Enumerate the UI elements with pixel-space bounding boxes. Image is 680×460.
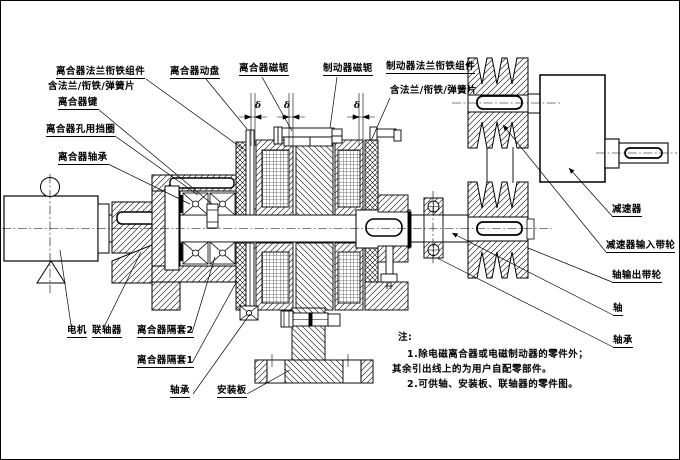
label-mounting-plate: 安装板 bbox=[217, 386, 247, 398]
label-shaft: 轴 bbox=[613, 304, 623, 316]
gap-delta-symbol: δ bbox=[284, 101, 290, 111]
clutch-shaft-key bbox=[207, 204, 218, 228]
gap-delta-symbol: δ bbox=[354, 101, 360, 111]
label-brake-flange-armature: 制动器法兰衔铁组件 bbox=[386, 62, 475, 74]
assembly-drawing: 离合器法兰衔铁组件 含法兰/衔铁/弹簧片 离合器键 离合器孔用挡圈 离合器轴承 … bbox=[0, 0, 680, 460]
label-brake-flange-sub: 含法兰/衔铁/弹簧片 bbox=[390, 86, 477, 97]
motor bbox=[4, 178, 109, 284]
reducer bbox=[528, 75, 668, 182]
label-bearing-right: 轴承 bbox=[613, 336, 633, 348]
brake-coil bbox=[338, 150, 360, 207]
label-clutch-flange-armature: 离合器法兰衔铁组件 bbox=[56, 67, 145, 79]
label-motor: 电机 bbox=[67, 326, 87, 338]
label-clutch-spacer1: 离合器隔套1 bbox=[137, 356, 194, 368]
shaft-bearing-block bbox=[424, 198, 443, 258]
label-clutch-flange-sub: 含法兰/衔铁/弹簧片 bbox=[48, 82, 135, 93]
brake-hub bbox=[356, 210, 410, 248]
note-line-3: 2.可供轴、安装板、联轴器的零件图。 bbox=[407, 376, 578, 390]
note-title: 注: bbox=[398, 329, 412, 343]
output-pulley bbox=[468, 182, 534, 278]
shaft-end-washer bbox=[527, 219, 534, 239]
clamp-bolt bbox=[281, 311, 340, 327]
label-brake-yoke: 制动器磁轭 bbox=[323, 64, 373, 76]
label-clutch-bearing: 离合器轴承 bbox=[58, 153, 108, 165]
label-bearing-bottom: 轴承 bbox=[170, 386, 190, 398]
label-clutch-bore-ring: 离合器孔用挡圈 bbox=[46, 125, 115, 137]
label-reducer-input-pulley: 减速器输入带轮 bbox=[606, 241, 675, 253]
label-clutch-yoke: 离合器磁轭 bbox=[239, 64, 289, 76]
note-line-2: 其余引出线上的为用户自配零部件。 bbox=[392, 361, 552, 375]
gap-delta-symbol: δ bbox=[255, 101, 261, 111]
bore-retaining-ring bbox=[179, 195, 183, 213]
label-reducer: 减速器 bbox=[612, 205, 642, 217]
label-shaft-output-pulley: 轴输出带轮 bbox=[612, 271, 662, 283]
rotor-bottom-bearing bbox=[240, 306, 258, 320]
rotor-section bbox=[296, 140, 333, 215]
label-clutch-key: 离合器键 bbox=[58, 98, 98, 110]
mounting-plate bbox=[240, 306, 373, 383]
clutch-coil bbox=[262, 150, 289, 207]
belt-lines bbox=[487, 147, 513, 183]
note-line-1: 1.除电磁离合器或电磁制动器的零件外； bbox=[407, 346, 588, 360]
label-clutch-disc: 离合器动盘 bbox=[170, 67, 220, 79]
label-coupling: 联轴器 bbox=[92, 326, 122, 338]
label-clutch-spacer2: 离合器隔套2 bbox=[137, 326, 194, 338]
bore-retaining-ring bbox=[179, 243, 183, 261]
brake-armature-section bbox=[365, 140, 378, 215]
